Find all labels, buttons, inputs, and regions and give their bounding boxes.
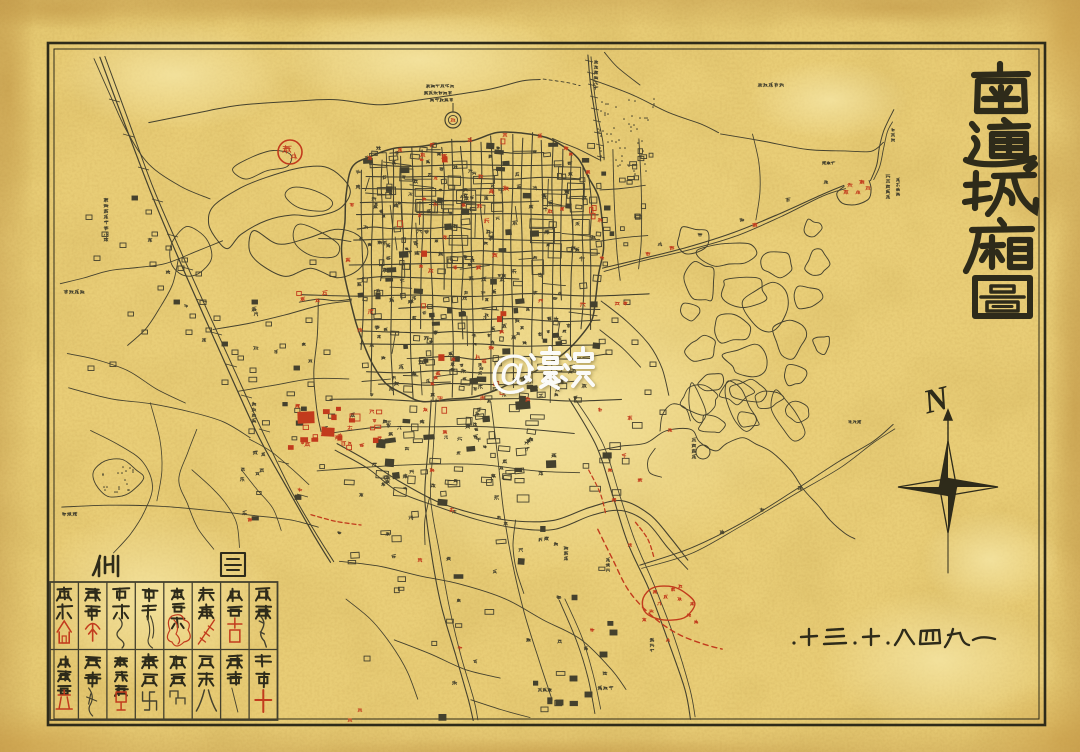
svg-text:@: @ bbox=[490, 346, 534, 397]
